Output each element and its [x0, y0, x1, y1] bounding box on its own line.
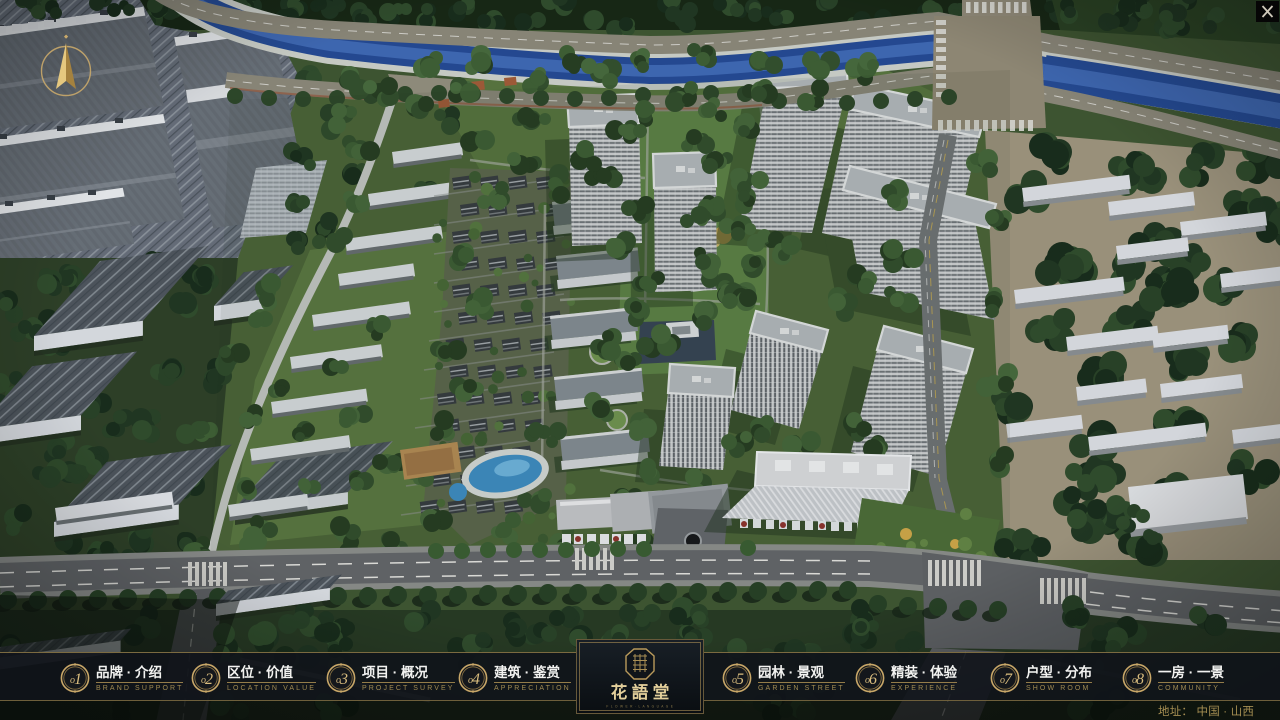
svg-text:7: 7 — [1004, 671, 1013, 688]
svg-text:3: 3 — [339, 671, 348, 688]
svg-text:2: 2 — [205, 671, 213, 688]
svg-text:6: 6 — [869, 671, 877, 688]
svg-text:5: 5 — [736, 671, 744, 688]
svg-text:8: 8 — [1136, 671, 1144, 688]
svg-text:4: 4 — [472, 671, 480, 688]
svg-text:1: 1 — [74, 671, 82, 688]
